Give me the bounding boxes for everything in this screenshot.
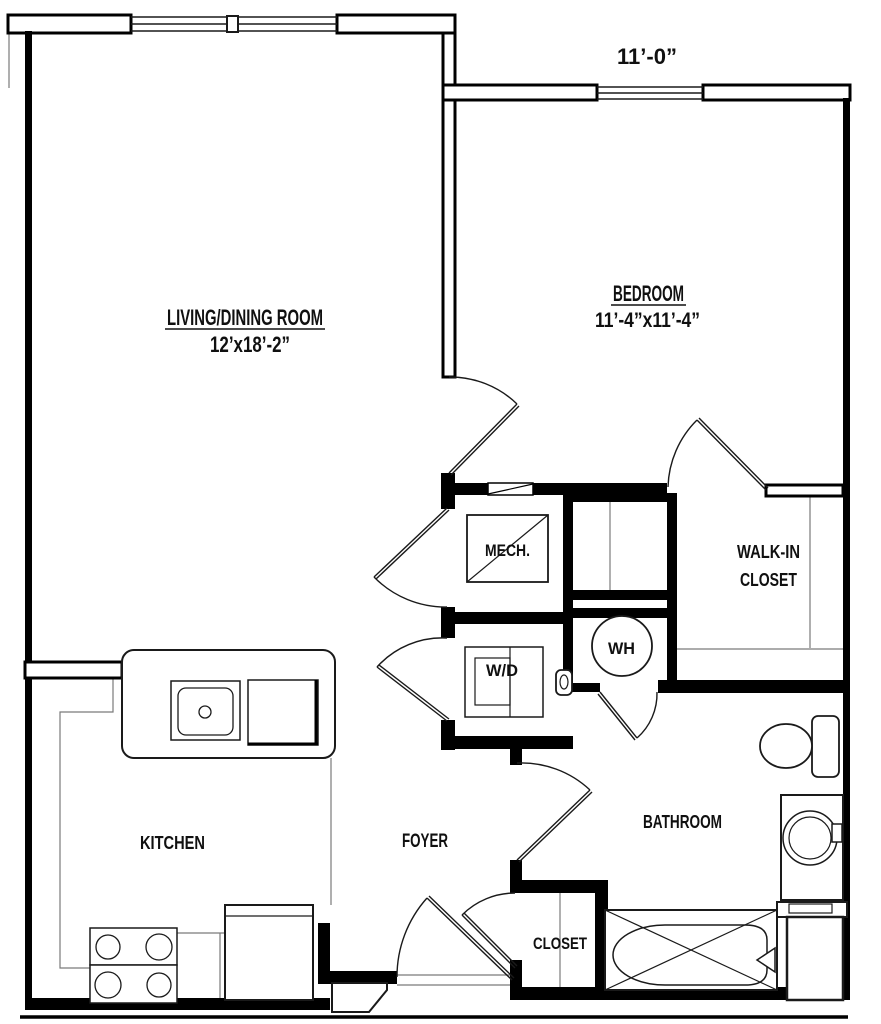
- dishwasher: [248, 680, 318, 745]
- washer-dryer-label: W/D: [486, 661, 518, 680]
- mech-label: MECH.: [485, 541, 530, 560]
- walkin-closet-label-line1: WALK-IN: [737, 542, 800, 562]
- linen-cabinet: [787, 917, 843, 1000]
- walls: [8, 15, 850, 1017]
- floor-plan-drawing: 11’-0” LIVING/DINING ROOM 12’x18’-2” BED…: [0, 0, 881, 1024]
- mech-door: [374, 508, 449, 607]
- wall-mech-right: [563, 483, 573, 692]
- floor-plan-page: 11’-0” LIVING/DINING ROOM 12’x18’-2” BED…: [0, 0, 881, 1024]
- wall-bedroom-top-west: [443, 85, 597, 100]
- wall-left: [25, 31, 32, 1010]
- toilet: [760, 716, 839, 777]
- bathroom-vanity: [777, 795, 847, 1000]
- wall-top-left: [8, 15, 131, 33]
- burner: [147, 973, 171, 997]
- wall-right: [843, 98, 850, 1000]
- wall-walkin-jamb: [766, 485, 843, 496]
- wall-bedroom-top-east: [703, 85, 850, 100]
- mech-louver: [488, 483, 533, 495]
- wall-linen-top: [573, 493, 677, 502]
- burner: [96, 935, 120, 959]
- bedroom-door: [449, 377, 519, 475]
- kitchen-half-wall: [25, 662, 122, 678]
- kitchen-label: KITCHEN: [140, 833, 205, 853]
- vanity-sink-bowl: [783, 811, 837, 865]
- wall-bath-stub-mid: [510, 860, 522, 893]
- washer-dryer: [465, 647, 543, 717]
- wall-top-mid: [337, 15, 455, 33]
- burner: [95, 972, 121, 998]
- bedroom-dimension: 11’-4”x11’-4”: [595, 309, 700, 332]
- fixtures: [25, 515, 847, 1012]
- kitchen-sink: [171, 681, 240, 740]
- toilet-tank: [812, 716, 839, 777]
- closet-label: CLOSET: [533, 934, 587, 953]
- wall-wd-top: [443, 612, 565, 624]
- wall-bathroom-top: [658, 680, 850, 693]
- wall-closet-top: [522, 880, 600, 893]
- bathroom-door: [517, 763, 592, 862]
- dryer-vent: [556, 670, 572, 695]
- living-dining-label: LIVING/DINING ROOM: [167, 305, 323, 330]
- wall-mech-cap: [441, 473, 455, 509]
- closet-door: [462, 893, 517, 968]
- burner: [146, 934, 172, 960]
- wall-linen-bottom: [573, 590, 677, 600]
- bedroom-window: [597, 87, 703, 99]
- bathtub: [605, 910, 777, 990]
- wall-wd-bottom: [443, 736, 573, 749]
- labels: 11’-0” LIVING/DINING ROOM 12’x18’-2” BED…: [140, 44, 800, 953]
- sink-drain: [199, 706, 211, 718]
- walkin-closet-label-line2: CLOSET: [740, 570, 797, 590]
- dimension-bedroom-window: 11’-0”: [617, 44, 677, 69]
- wd-door: [377, 638, 449, 721]
- thin-floor-lines: [9, 33, 843, 1000]
- wall-wd-cap: [441, 607, 455, 638]
- vanity-faucet: [832, 824, 842, 842]
- living-room-window: [131, 16, 337, 32]
- wh-door: [598, 692, 657, 740]
- stove: [90, 928, 177, 1003]
- walkin-door: [668, 418, 768, 490]
- entry-door: [397, 896, 514, 980]
- window-mullion: [227, 16, 238, 32]
- bedroom-label: BEDROOM: [613, 281, 684, 306]
- entry-stoop: [332, 983, 387, 1012]
- bathroom-label: BATHROOM: [643, 812, 722, 832]
- refrigerator: [225, 905, 313, 1000]
- toilet-bowl: [760, 724, 812, 768]
- foyer-label: FOYER: [402, 831, 448, 852]
- water-heater-label: WH: [608, 639, 635, 658]
- living-dining-dimension: 12’x18’-2”: [210, 332, 290, 357]
